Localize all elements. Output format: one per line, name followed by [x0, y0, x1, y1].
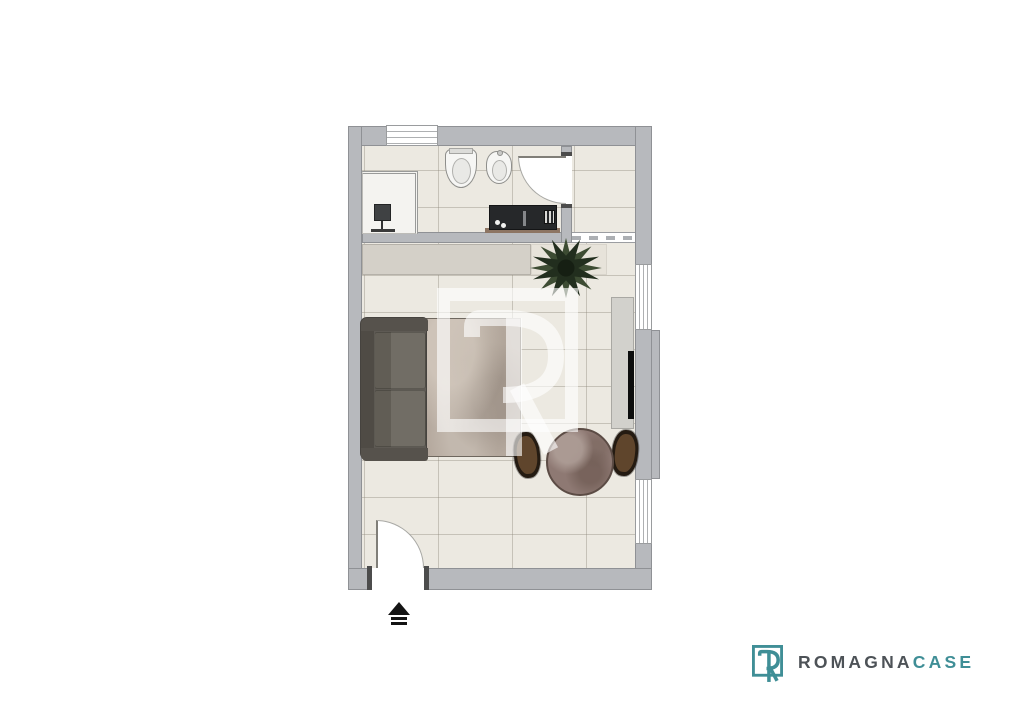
entrance-arrow-bar — [391, 617, 407, 620]
brand-name: ROMAGNACASE — [798, 652, 974, 673]
brand-logo-r-icon — [752, 645, 783, 689]
right-wall-window-lower — [635, 479, 652, 544]
shower-fixture-base — [371, 229, 395, 232]
sofa-armrest-top — [361, 318, 428, 331]
brand-name-accent: CASE — [913, 652, 974, 672]
shower-fixture-icon — [374, 204, 391, 221]
hallway-floor — [572, 146, 635, 232]
right-wall-window-upper — [635, 264, 652, 330]
bathroom-door-jamb-bottom — [561, 204, 572, 208]
wall-right-pillar — [651, 330, 660, 479]
bidet-bowl — [492, 160, 507, 181]
floorplan-canvas — [0, 0, 1024, 723]
shower — [362, 171, 418, 234]
top-wall-window — [386, 125, 438, 146]
toilet-lid — [449, 148, 473, 154]
entrance-arrow-bar — [391, 622, 407, 625]
wardrobe-strip — [362, 244, 531, 275]
toilet-bowl — [452, 158, 471, 184]
sofa-back — [361, 318, 374, 461]
vanity-item — [495, 220, 500, 225]
chair-seat — [613, 433, 637, 473]
sofa — [360, 317, 427, 460]
vanity-faucet — [523, 211, 526, 226]
watermark-badge — [437, 288, 578, 488]
sofa-armrest-bottom — [361, 448, 428, 461]
vanity-item — [501, 223, 506, 228]
sofa-cushion — [374, 332, 426, 389]
shower-fixture-stem — [381, 221, 383, 229]
entrance-opening — [372, 568, 424, 590]
bidet-tap — [497, 150, 503, 156]
entrance-arrow-icon — [388, 602, 410, 615]
bidet-icon — [486, 151, 512, 184]
vanity-rack — [544, 210, 555, 224]
watermark-r-icon — [437, 288, 578, 488]
sofa-cushion — [374, 390, 426, 447]
vanity-counter — [489, 205, 557, 230]
brand-logo: ROMAGNACASE — [752, 645, 974, 689]
tv-icon — [628, 351, 634, 419]
entrance-jamb-left — [367, 566, 372, 590]
entrance-jamb-right — [424, 566, 429, 590]
brand-name-primary: ROMAGNA — [798, 652, 913, 672]
